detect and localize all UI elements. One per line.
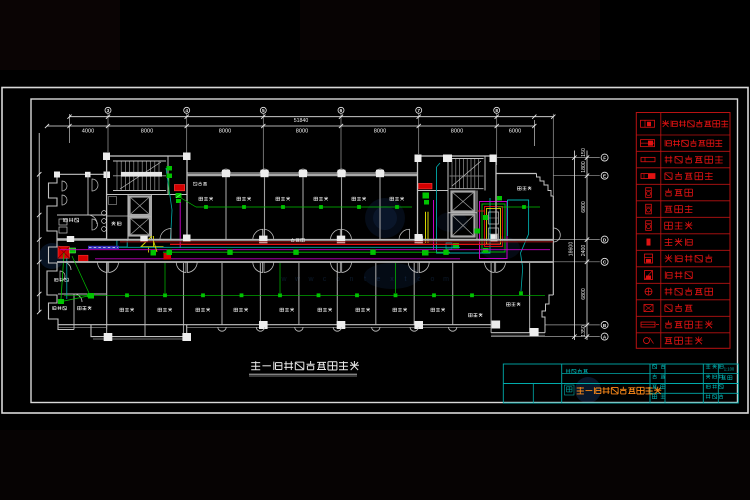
svg-text:2400: 2400 <box>581 245 587 257</box>
svg-text:1350: 1350 <box>581 325 587 337</box>
svg-text:o: o <box>336 276 340 283</box>
svg-text:8000: 8000 <box>451 128 463 134</box>
svg-text:4000: 4000 <box>82 128 94 134</box>
svg-text:t: t <box>405 276 407 283</box>
svg-text:7: 7 <box>417 108 420 114</box>
svg-text:E: E <box>603 174 606 179</box>
svg-text:4: 4 <box>185 108 188 114</box>
svg-text:8000: 8000 <box>219 128 231 134</box>
svg-text:150: 150 <box>581 148 587 157</box>
svg-text:t: t <box>364 276 366 283</box>
svg-text:w: w <box>307 276 314 283</box>
svg-text:1:100: 1:100 <box>724 367 735 372</box>
svg-text:w: w <box>280 276 287 283</box>
svg-text:1800: 1800 <box>581 161 587 173</box>
svg-text:n: n <box>350 276 354 283</box>
svg-text:6800: 6800 <box>581 288 587 300</box>
svg-text:c: c <box>417 276 421 283</box>
svg-text:c: c <box>323 276 327 283</box>
svg-text:5: 5 <box>262 108 265 114</box>
svg-text:e: e <box>377 276 381 283</box>
svg-text:x: x <box>390 276 394 283</box>
svg-text:6000: 6000 <box>509 128 521 134</box>
svg-text:8000: 8000 <box>141 128 153 134</box>
svg-text:6: 6 <box>340 108 343 114</box>
svg-text:8000: 8000 <box>374 128 386 134</box>
svg-text:3: 3 <box>107 108 110 114</box>
svg-text:F: F <box>603 156 606 161</box>
svg-text:8: 8 <box>495 108 498 114</box>
svg-text:18600: 18600 <box>569 242 575 257</box>
svg-text:m: m <box>443 276 449 283</box>
svg-text:8000: 8000 <box>296 128 308 134</box>
svg-text:o: o <box>431 276 435 283</box>
svg-text:51840: 51840 <box>294 118 309 124</box>
svg-text:w: w <box>294 276 301 283</box>
svg-text:6800: 6800 <box>581 201 587 213</box>
